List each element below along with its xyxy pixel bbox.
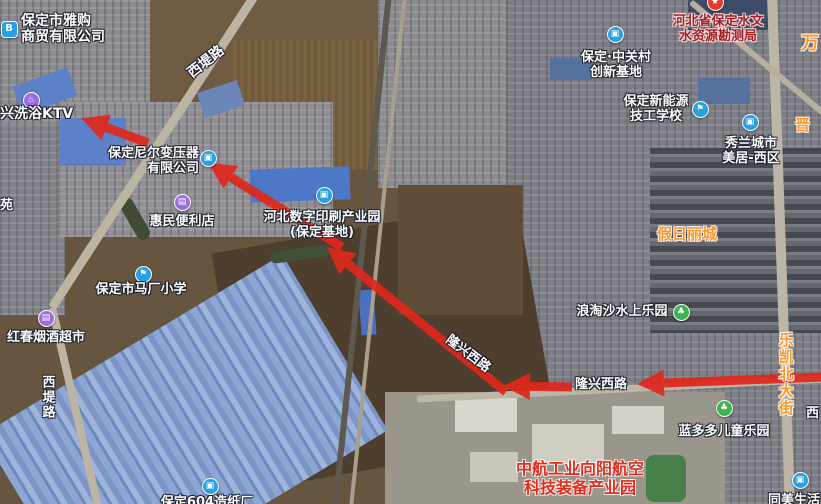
hebei-printing-park-icon[interactable]: ▣ (316, 187, 333, 204)
poi-label-nier-transformer-co[interactable]: 保定尼尔变压器有限公司 (108, 146, 199, 176)
tongmei-life-glyph: ▣ (796, 476, 805, 485)
factory-hall (455, 398, 517, 432)
landuoduo-kids-park-icon[interactable]: ♣ (716, 400, 733, 417)
hydrology-bureau-icon[interactable]: ★ (707, 0, 724, 11)
huimin-store-icon[interactable]: ▤ (174, 194, 191, 211)
tongmei-life-icon[interactable]: ▣ (792, 472, 809, 489)
poi-label-tongmei-life[interactable]: 同美生活 (768, 493, 820, 504)
poi-label-baoding-604-paper-mill[interactable]: 保定604造纸厂 (161, 495, 253, 504)
building-cluster (0, 125, 65, 315)
nier-transformer-co-glyph: ▣ (204, 154, 213, 163)
factory-roof-blue (249, 166, 350, 202)
xiulan-meiju-west-glyph: ▣ (746, 118, 755, 127)
poi-label-machang-primary-school[interactable]: 保定市马厂小学 (95, 282, 186, 297)
poi-label-langtaosha-waterpark[interactable]: 浪淘沙水上乐园 (576, 304, 667, 319)
langtaosha-waterpark-icon[interactable]: ♣ (673, 304, 690, 321)
new-energy-tech-school-glyph: ⚑ (696, 105, 704, 114)
hongchun-supermarket-icon[interactable]: ▤ (38, 310, 55, 327)
baoding-604-paper-mill-glyph: ▣ (206, 482, 215, 491)
huimin-store-glyph: ▤ (178, 198, 187, 207)
satellite-map[interactable]: B保定市雅购商贸有限公司♨继兴洗浴KTV▣保定尼尔变压器有限公司▤惠民便利店▣河… (0, 0, 821, 504)
poi-label-hongchun-supermarket[interactable]: 红春烟酒超市 (7, 330, 85, 345)
poi-label-hebei-printing-park[interactable]: 河北数字印刷产业园(保定基地) (263, 210, 380, 240)
hydrology-bureau-glyph: ★ (711, 0, 719, 7)
poi-label-hydrology-bureau[interactable]: 河北省保定水文水资源勘测局 (672, 14, 763, 44)
hebei-printing-park-glyph: ▣ (320, 191, 329, 200)
poi-label-zhongguancun-base[interactable]: 保定·中关村创新基地 (581, 50, 651, 80)
landuoduo-kids-park-glyph: ♣ (720, 404, 728, 413)
poi-label-new-energy-tech-school[interactable]: 保定新能源技工学校 (623, 94, 688, 124)
xiulan-meiju-west-icon[interactable]: ▣ (742, 114, 759, 131)
nier-transformer-co-icon[interactable]: ▣ (200, 150, 217, 167)
sports-field (646, 455, 686, 502)
yagou-trading-icon[interactable]: B (1, 21, 18, 38)
baoding-604-paper-mill-icon[interactable]: ▣ (202, 478, 219, 495)
hongchun-supermarket-glyph: ▤ (42, 314, 51, 323)
machang-primary-school-icon[interactable]: ⚑ (135, 266, 152, 283)
yagou-trading-glyph: B (5, 24, 13, 34)
machang-primary-school-glyph: ⚑ (139, 270, 147, 279)
jixing-bath-ktv-glyph: ♨ (27, 96, 35, 105)
langtaosha-waterpark-glyph: ♣ (677, 308, 685, 317)
factory-hall (532, 424, 604, 464)
poi-label-landuoduo-kids-park[interactable]: 蓝多多儿童乐园 (678, 424, 769, 439)
poi-label-jixing-bath-ktv[interactable]: 继兴洗浴KTV (0, 106, 73, 122)
new-energy-tech-school-icon[interactable]: ⚑ (692, 101, 709, 118)
poi-label-huimin-store[interactable]: 惠民便利店 (149, 214, 214, 229)
poi-label-yagou-trading[interactable]: 保定市雅购商贸有限公司 (21, 13, 105, 45)
terrain-field (398, 185, 523, 315)
factory-hall (470, 452, 518, 482)
poi-label-xiulan-meiju-west[interactable]: 秀兰城市美居-西区 (722, 136, 779, 166)
zhongguancun-base-glyph: ▣ (611, 30, 620, 39)
zhongguancun-base-icon[interactable]: ▣ (607, 26, 624, 43)
factory-roof-blue (698, 78, 750, 104)
factory-hall (612, 406, 664, 434)
